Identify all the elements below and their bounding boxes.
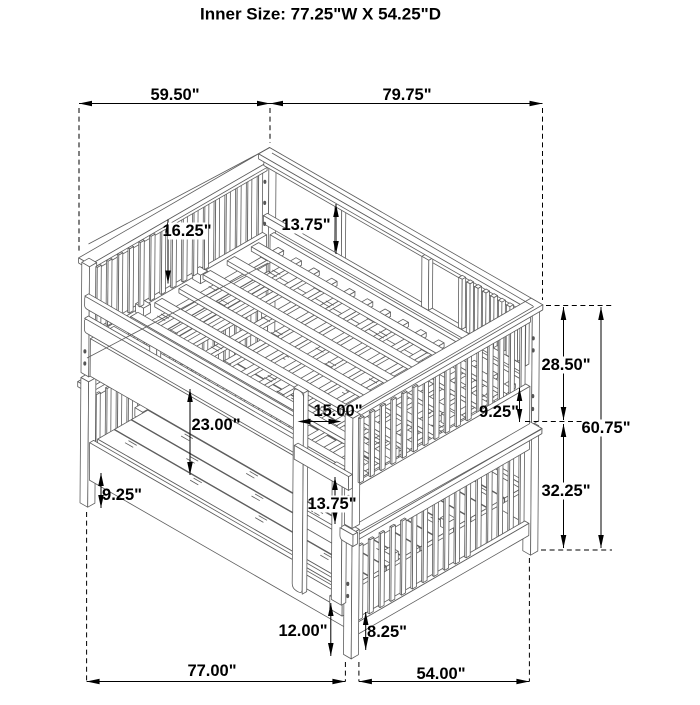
svg-text:59.50": 59.50" xyxy=(150,86,199,104)
svg-text:15.00": 15.00" xyxy=(313,402,362,420)
svg-text:23.00": 23.00" xyxy=(191,416,240,434)
svg-text:77.00": 77.00" xyxy=(187,662,236,680)
svg-text:Inner Size: 77.25"W X 54.25"D: Inner Size: 77.25"W X 54.25"D xyxy=(200,5,441,24)
svg-text:13.75": 13.75" xyxy=(307,495,356,513)
svg-text:8.25": 8.25" xyxy=(367,623,407,641)
svg-text:60.75": 60.75" xyxy=(581,419,630,437)
svg-text:79.75": 79.75" xyxy=(382,86,431,104)
svg-text:12.00": 12.00" xyxy=(278,622,327,640)
svg-text:13.75": 13.75" xyxy=(281,216,330,234)
svg-text:28.50": 28.50" xyxy=(541,356,590,374)
svg-text:16.25": 16.25" xyxy=(162,222,211,240)
svg-text:9.25": 9.25" xyxy=(102,486,142,504)
svg-text:9.25": 9.25" xyxy=(479,403,519,421)
svg-text:32.25": 32.25" xyxy=(541,482,590,500)
svg-text:54.00": 54.00" xyxy=(416,665,465,683)
